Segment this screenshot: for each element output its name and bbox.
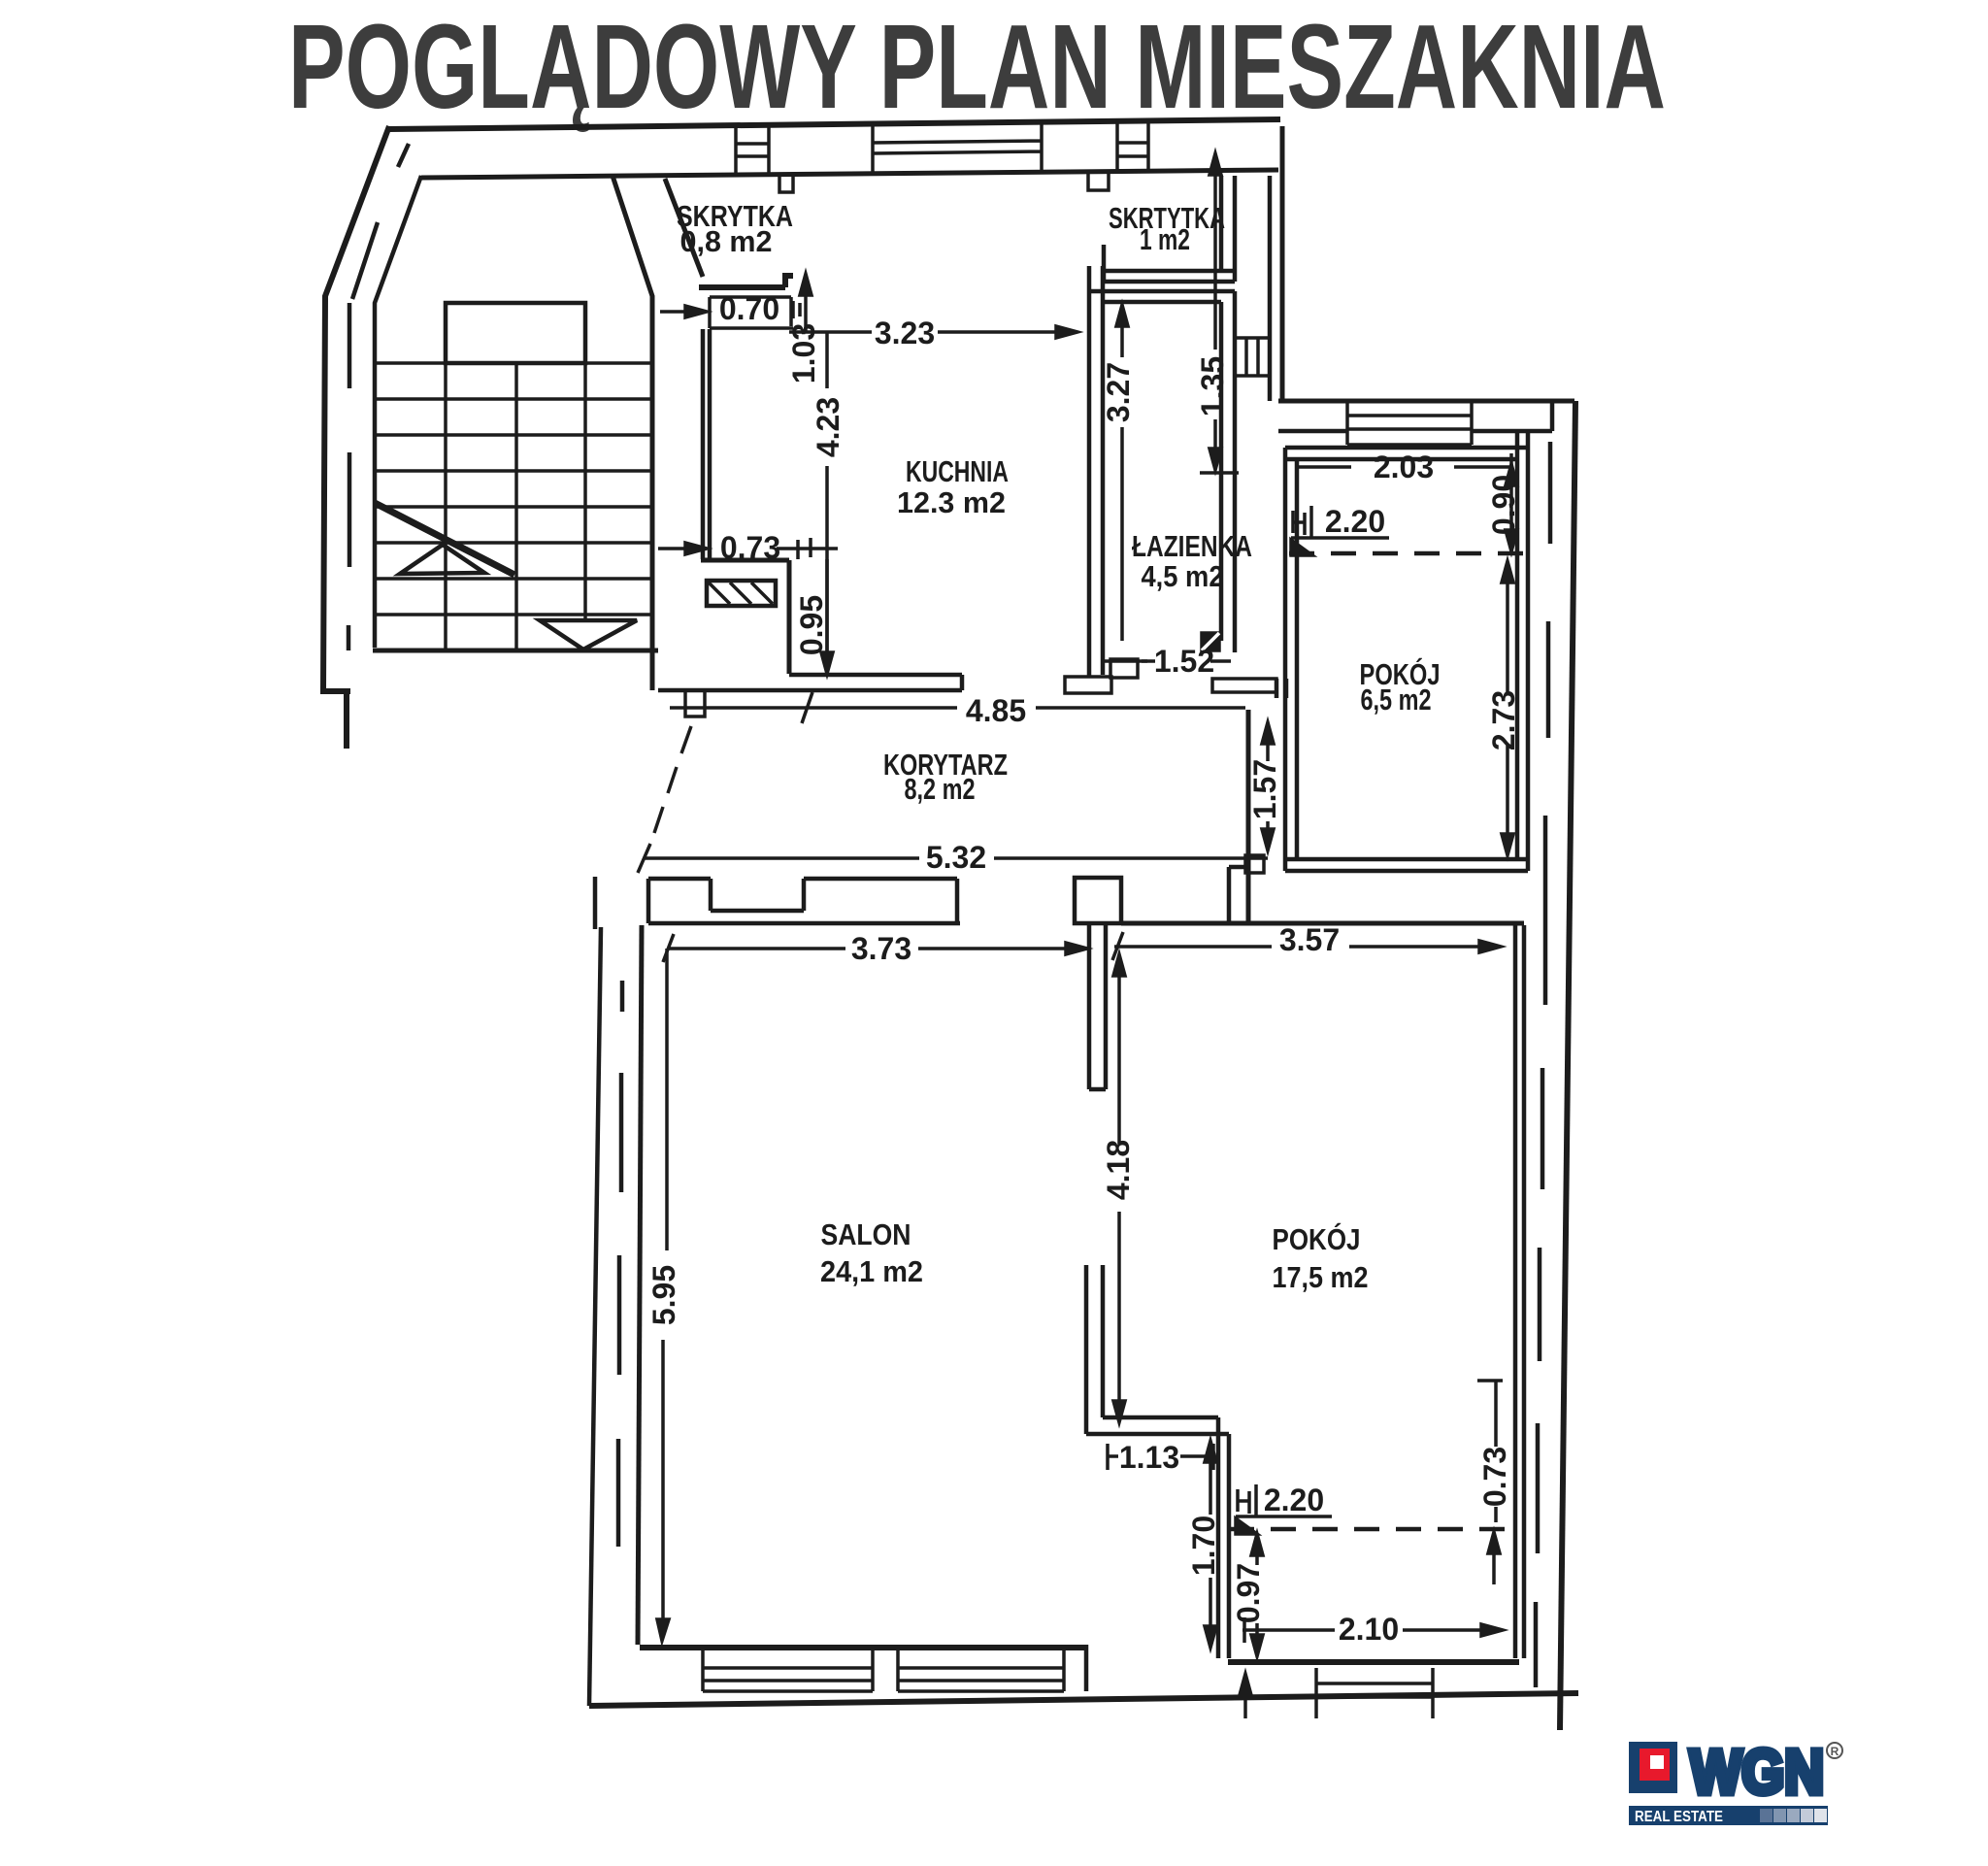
svg-text:4,5 m2: 4,5 m2: [1142, 559, 1224, 593]
svg-text:6,5 m2: 6,5 m2: [1361, 683, 1432, 716]
svg-text:R: R: [1831, 1745, 1839, 1758]
svg-text:0.73: 0.73: [1477, 1447, 1512, 1507]
svg-text:0.73: 0.73: [720, 530, 780, 565]
svg-text:1.13: 1.13: [1119, 1440, 1179, 1475]
svg-text:POGLĄDOWY PLAN MIESZAKNIA: POGLĄDOWY PLAN MIESZAKNIA: [288, 1, 1666, 134]
svg-text:1.35: 1.35: [1195, 356, 1230, 417]
svg-text:8,2 m2: 8,2 m2: [905, 772, 976, 806]
svg-text:POKÓJ: POKÓJ: [1273, 1221, 1361, 1256]
svg-text:12.3 m2: 12.3 m2: [897, 485, 1006, 519]
svg-text:KUCHNIA: KUCHNIA: [906, 454, 1009, 488]
svg-text:5.95: 5.95: [646, 1265, 681, 1325]
svg-text:0.97: 0.97: [1231, 1563, 1266, 1623]
svg-text:2.20: 2.20: [1264, 1483, 1324, 1517]
svg-text:REAL ESTATE: REAL ESTATE: [1635, 1809, 1723, 1825]
svg-text:3.57: 3.57: [1279, 922, 1340, 957]
svg-text:17,5 m2: 17,5 m2: [1273, 1260, 1369, 1294]
svg-text:0,8 m2: 0,8 m2: [680, 224, 773, 258]
svg-text:ŁAZIENKA: ŁAZIENKA: [1132, 529, 1252, 563]
svg-text:4.18: 4.18: [1101, 1140, 1136, 1200]
svg-text:24,1 m2: 24,1 m2: [820, 1254, 923, 1288]
svg-text:4.23: 4.23: [811, 397, 845, 457]
svg-text:2.20: 2.20: [1325, 504, 1385, 539]
svg-text:1 m2: 1 m2: [1140, 222, 1190, 256]
svg-text:2.73: 2.73: [1486, 690, 1521, 750]
svg-text:WGN: WGN: [1690, 1737, 1824, 1807]
svg-text:3.23: 3.23: [875, 316, 935, 350]
svg-text:3.27: 3.27: [1101, 362, 1136, 422]
svg-text:0.90: 0.90: [1486, 475, 1521, 535]
svg-text:2.03: 2.03: [1374, 450, 1434, 484]
svg-text:1.57: 1.57: [1247, 759, 1282, 819]
svg-text:SALON: SALON: [821, 1217, 911, 1251]
svg-text:5.32: 5.32: [926, 840, 986, 875]
svg-text:1.52: 1.52: [1154, 644, 1214, 679]
svg-text:4.85: 4.85: [966, 693, 1026, 728]
svg-text:2.10: 2.10: [1339, 1612, 1399, 1647]
svg-text:0.95: 0.95: [794, 595, 829, 655]
svg-text:3.73: 3.73: [851, 931, 911, 966]
svg-text:1.70: 1.70: [1186, 1516, 1221, 1576]
svg-text:0.70: 0.70: [719, 291, 779, 326]
